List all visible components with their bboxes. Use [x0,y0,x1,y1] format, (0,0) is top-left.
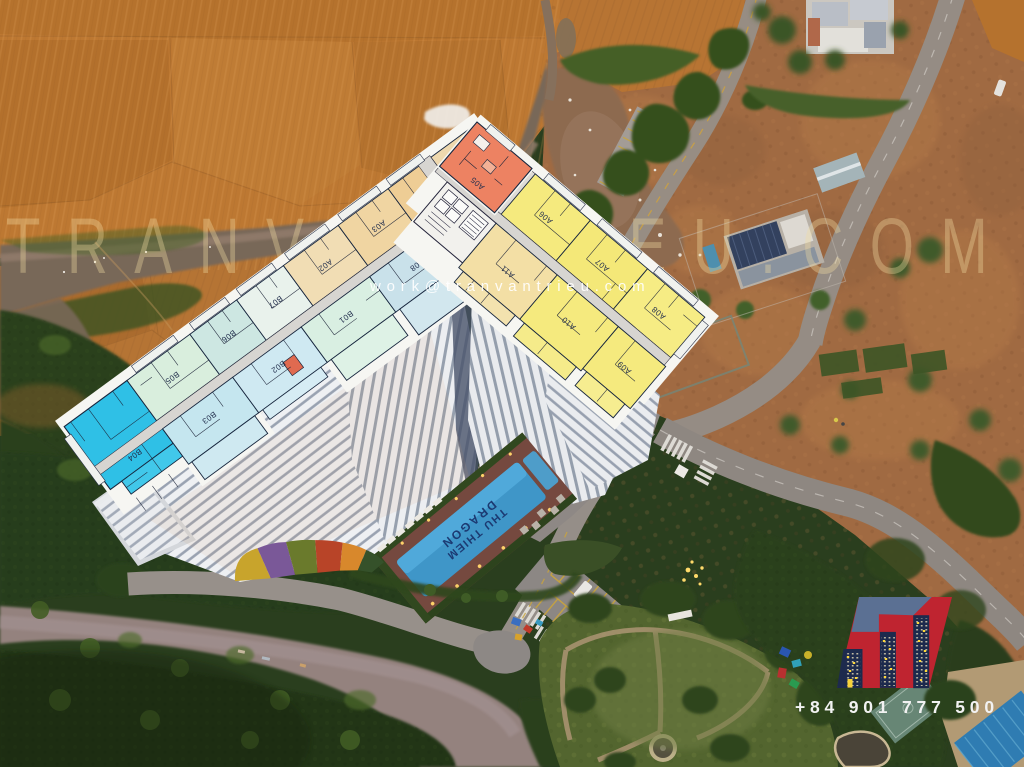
svg-text:+84 901 777 500: +84 901 777 500 [795,697,999,717]
svg-text:work@tranvantrieu.com: work@tranvantrieu.com [369,278,650,295]
